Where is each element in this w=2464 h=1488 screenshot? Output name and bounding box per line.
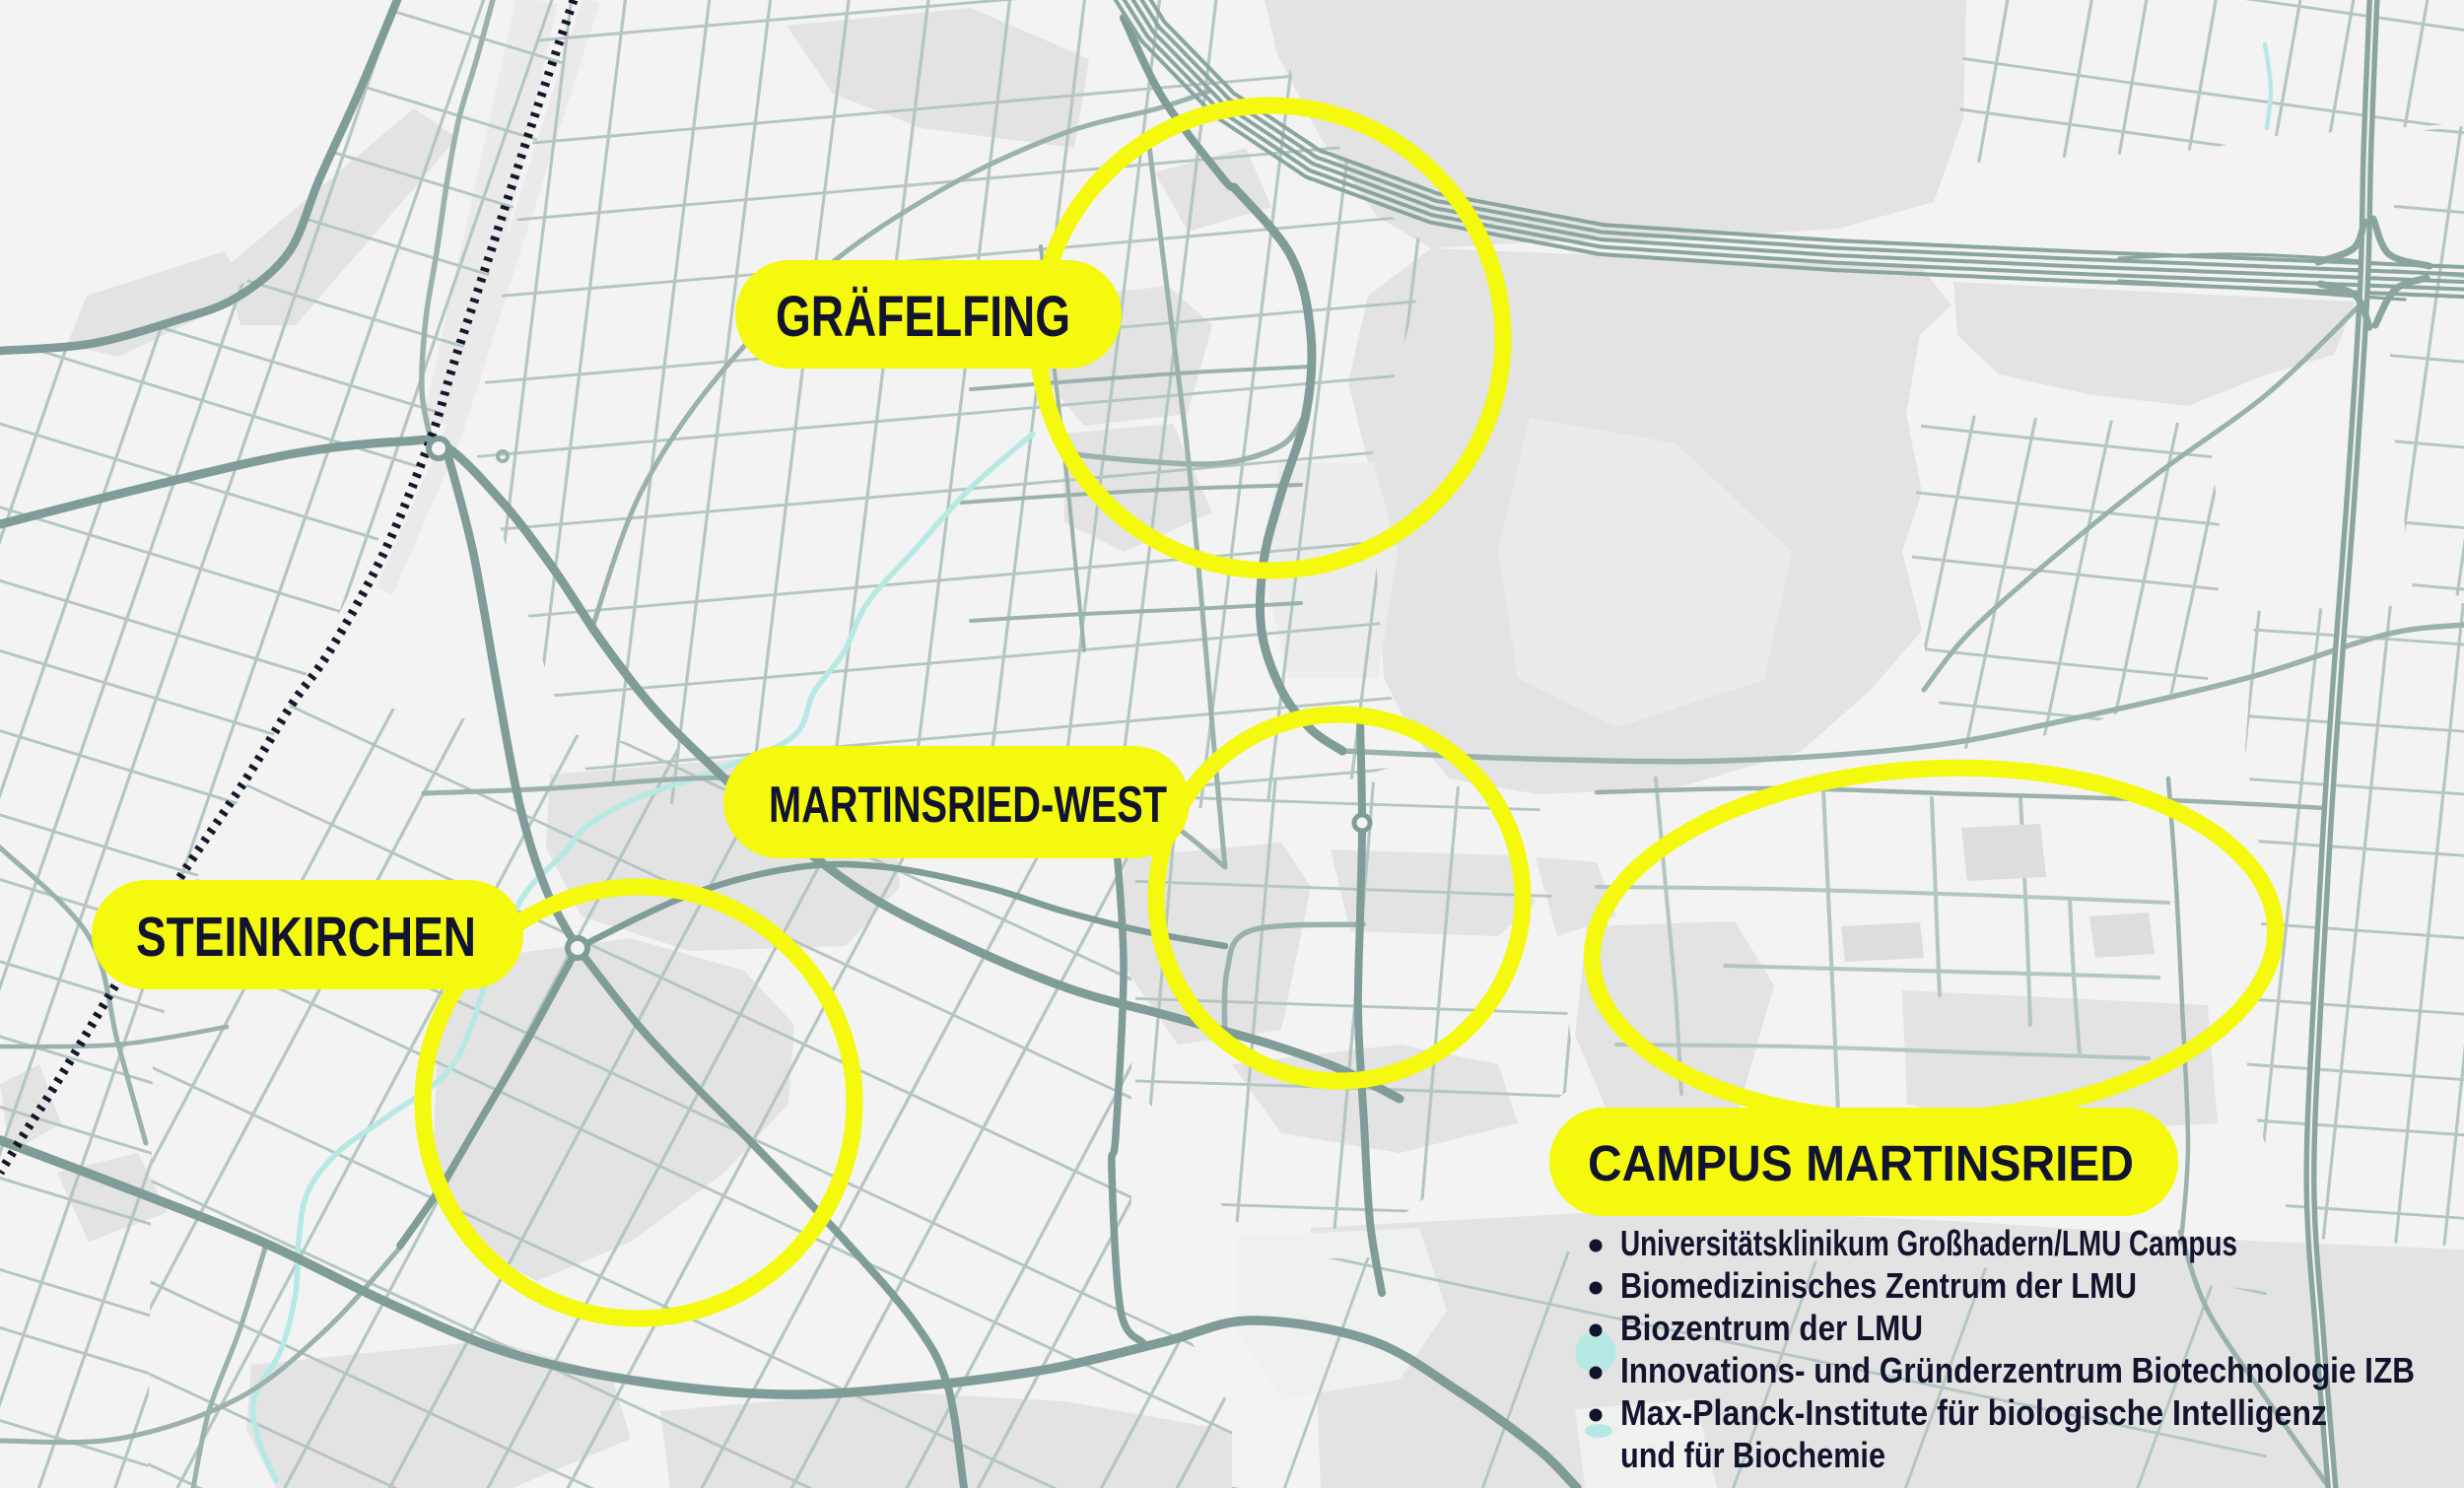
svg-text:Biozentrum der LMU: Biozentrum der LMU — [1620, 1308, 1923, 1348]
svg-text:Max-Planck-Institute für biolo: Max-Planck-Institute für biologische Int… — [1620, 1392, 2327, 1433]
svg-text:MARTINSRIED-WEST: MARTINSRIED-WEST — [769, 777, 1167, 834]
svg-text:und für Biochemie: und für Biochemie — [1620, 1435, 1885, 1475]
svg-text:CAMPUS MARTINSRIED: CAMPUS MARTINSRIED — [1588, 1135, 2134, 1191]
svg-text:Universitätsklinikum Großhader: Universitätsklinikum Großhadern/LMU Camp… — [1620, 1223, 2237, 1263]
svg-text:Biomedizinisches Zentrum der L: Biomedizinisches Zentrum der LMU — [1620, 1265, 2137, 1306]
svg-text:Innovations- und Gründerzentru: Innovations- und Gründerzentrum Biotechn… — [1620, 1350, 2415, 1390]
svg-text:STEINKIRCHEN: STEINKIRCHEN — [136, 906, 476, 969]
svg-text:GRÄFELFING: GRÄFELFING — [776, 285, 1070, 349]
